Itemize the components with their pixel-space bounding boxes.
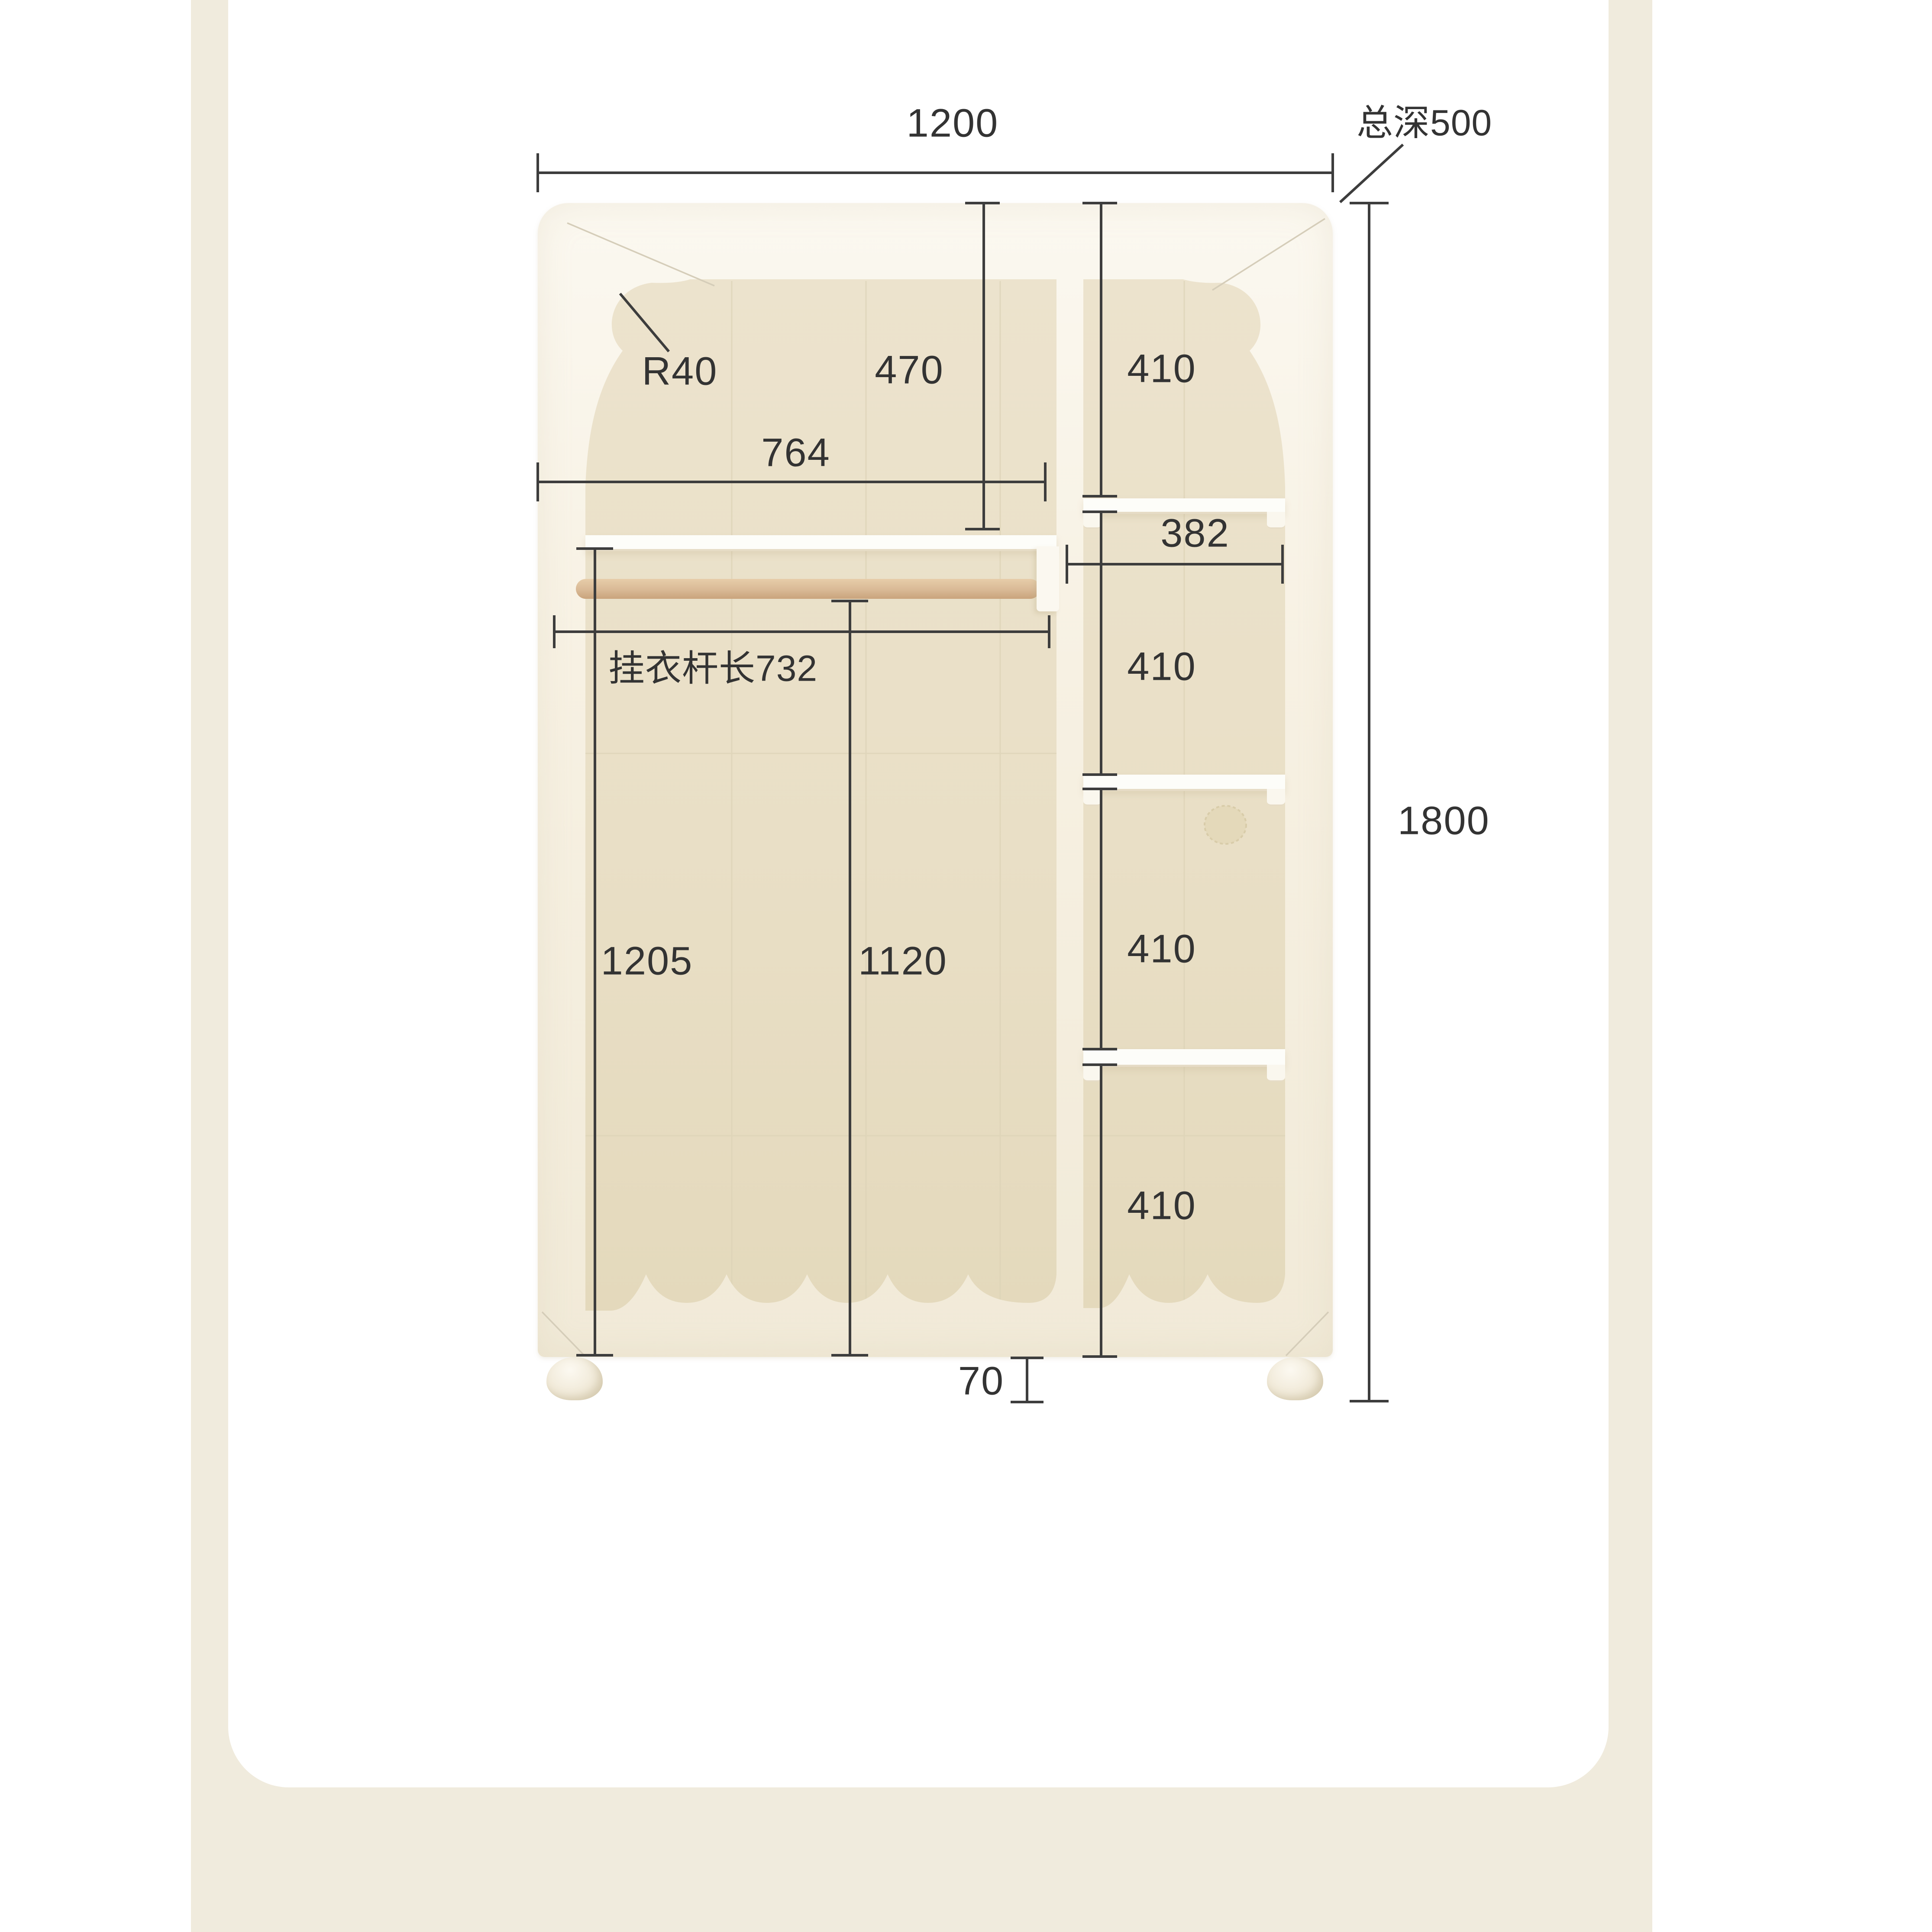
bevel-top-right	[1212, 219, 1325, 290]
right-leg	[1267, 1357, 1323, 1400]
dim-1205-tick-top	[576, 547, 613, 550]
dim-470-tick-top	[965, 202, 1000, 204]
dim-overall-width-label: 1200	[907, 101, 999, 146]
dim-764-tick-left	[536, 462, 539, 501]
dim-410c-line	[1100, 789, 1102, 1049]
shelf-corbel	[1083, 512, 1102, 529]
dim-410d-tick-bottom	[1082, 1355, 1117, 1358]
hanging-rod	[576, 579, 1040, 599]
dim-764-label: 764	[761, 430, 830, 476]
dim-overall-width-tick-left	[536, 153, 539, 192]
dim-overall-height-line	[1368, 203, 1370, 1401]
dim-410b-label: 410	[1127, 644, 1196, 690]
shelf-corbel	[1083, 789, 1102, 806]
dim-410a-label: 410	[1127, 346, 1196, 392]
shelf-corbel	[1267, 512, 1285, 529]
dim-1120-tick-bottom	[831, 1354, 868, 1357]
dim-410c-label: 410	[1127, 927, 1196, 972]
dim-overall-width-tick-right	[1331, 153, 1334, 192]
dim-410a-tick-bottom	[1082, 495, 1117, 498]
dim-732-tick-left	[553, 615, 556, 648]
bevel-bottom-right	[1286, 1312, 1328, 1356]
dim-1120-tick-top	[831, 600, 868, 602]
dim-410c-tick-top	[1082, 788, 1117, 790]
dim-764-tick-right	[1044, 462, 1047, 501]
dim-overall-width-line	[538, 171, 1333, 174]
dim-1205-line	[594, 549, 596, 1357]
bevel-top-left	[567, 223, 714, 286]
dim-410c-tick-bottom	[1082, 1048, 1117, 1050]
bevel-bottom-left	[542, 1312, 585, 1356]
dim-382-line	[1067, 563, 1283, 565]
dim-410d-label: 410	[1127, 1183, 1196, 1229]
shelf-corbel	[1083, 1065, 1102, 1082]
diagram-stage: 1200 总深500 1800 R40 470 410 764 382 挂衣杆长…	[0, 0, 1932, 1932]
dim-732-label: 挂衣杆长732	[608, 640, 817, 692]
dim-470-tick-bottom	[965, 528, 1000, 530]
dim-overall-height-tick-top	[1350, 202, 1389, 204]
left-leg	[546, 1357, 603, 1400]
dim-410d-tick-top	[1082, 1063, 1117, 1066]
shelf-corbel	[1267, 1065, 1285, 1082]
dim-410b-tick-bottom	[1082, 773, 1117, 776]
dim-410a-line	[1100, 203, 1102, 496]
dim-ear-radius-label: R40	[642, 349, 718, 394]
dim-410b-tick-top	[1082, 510, 1117, 513]
dim-732-line	[554, 630, 1049, 633]
dim-382-label: 382	[1160, 511, 1230, 556]
dim-70-line	[1026, 1358, 1028, 1402]
dim-1205-label: 1205	[601, 939, 693, 984]
dim-70-tick-top	[1011, 1357, 1044, 1359]
dim-1205-tick-bottom	[576, 1354, 613, 1357]
shelf-corbel	[1267, 789, 1285, 806]
dim-470-label: 470	[875, 348, 944, 393]
dim-overall-height-tick-bottom	[1350, 1400, 1389, 1402]
rod-bracket	[1037, 546, 1059, 611]
dim-732-tick-right	[1048, 615, 1050, 648]
left-shelf	[585, 535, 1056, 551]
dim-764-line	[538, 481, 1045, 483]
dim-382-tick-left	[1066, 545, 1068, 584]
dim-410d-line	[1100, 1065, 1102, 1357]
dim-410a-tick-top	[1082, 202, 1117, 204]
dim-382-tick-right	[1281, 545, 1284, 584]
dim-70-tick-bottom	[1011, 1401, 1044, 1403]
dim-1120-line	[849, 601, 851, 1357]
dim-overall-depth-label: 总深500	[1357, 94, 1492, 146]
dim-70-label: 70	[958, 1359, 1004, 1404]
dim-1120-label: 1120	[858, 939, 947, 984]
vent-detail	[1205, 806, 1246, 844]
dim-410b-line	[1100, 512, 1102, 775]
dim-overall-height-label: 1800	[1398, 798, 1490, 844]
